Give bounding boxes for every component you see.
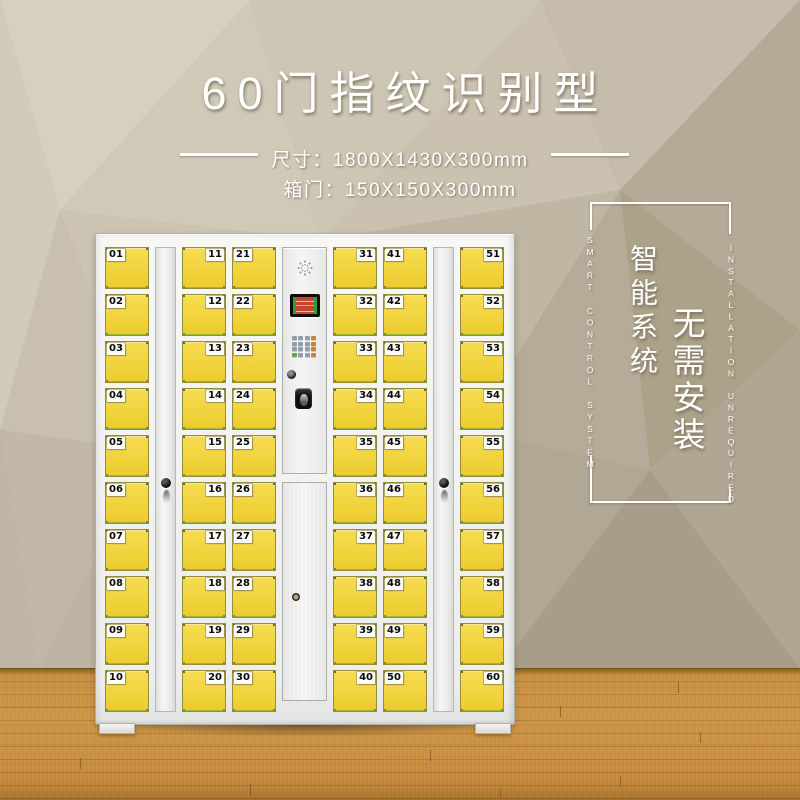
frame-line-top bbox=[590, 202, 731, 204]
keypad-key bbox=[305, 347, 310, 351]
locker-door-column: 21222324252627282930 bbox=[232, 247, 276, 712]
locker-door-column: 31323334353637383940 bbox=[333, 247, 377, 712]
door-number-plate: 40 bbox=[357, 672, 375, 684]
locker-door: 11 bbox=[182, 247, 226, 289]
locker-door: 50 bbox=[383, 670, 427, 712]
door-number-plate: 28 bbox=[234, 578, 252, 590]
locker-door: 47 bbox=[383, 529, 427, 571]
locker-door: 25 bbox=[232, 435, 276, 477]
frame-line-bottom bbox=[590, 501, 731, 503]
spec-rule-right bbox=[551, 153, 629, 156]
locker-door: 58 bbox=[460, 576, 504, 618]
locker-door: 40 bbox=[333, 670, 377, 712]
locker-cabinet: 0102030405060708091011121314151617181920… bbox=[95, 233, 515, 725]
keypad-key bbox=[292, 353, 297, 357]
locker-door: 27 bbox=[232, 529, 276, 571]
keypad-key bbox=[305, 353, 310, 357]
screen-content bbox=[293, 297, 317, 314]
keypad-key bbox=[298, 353, 303, 357]
locker-door-column: 41424344454647484950 bbox=[383, 247, 427, 712]
door-number-plate: 05 bbox=[107, 437, 125, 449]
locker-grid: 0102030405060708091011121314151617181920… bbox=[105, 247, 504, 712]
door-number-plate: 53 bbox=[484, 343, 502, 355]
locker-door: 36 bbox=[333, 482, 377, 524]
door-number-plate: 34 bbox=[357, 390, 375, 402]
lock-strip-panel bbox=[433, 247, 454, 712]
door-number-plate: 26 bbox=[234, 484, 252, 496]
locker-door-column: 01020304050607080910 bbox=[105, 247, 149, 712]
door-number-plate: 10 bbox=[107, 672, 125, 684]
locker-door: 54 bbox=[460, 388, 504, 430]
locker-door: 15 bbox=[182, 435, 226, 477]
door-number-plate: 20 bbox=[206, 672, 224, 684]
locker-door-column: 11121314151617181920 bbox=[182, 247, 226, 712]
locker-door: 30 bbox=[232, 670, 276, 712]
door-number-plate: 14 bbox=[206, 390, 224, 402]
door-number-plate: 25 bbox=[234, 437, 252, 449]
door-number-plate: 36 bbox=[357, 484, 375, 496]
locker-door: 14 bbox=[182, 388, 226, 430]
door-number-plate: 03 bbox=[107, 343, 125, 355]
door-number-plate: 19 bbox=[206, 625, 224, 637]
locker-door: 04 bbox=[105, 388, 149, 430]
locker-door: 17 bbox=[182, 529, 226, 571]
keypad-key bbox=[311, 353, 316, 357]
door-number-plate: 49 bbox=[385, 625, 403, 637]
cabinet-foot-left bbox=[99, 723, 135, 734]
lock-strip-panel bbox=[155, 247, 176, 712]
control-console bbox=[282, 247, 327, 474]
keypad-key bbox=[292, 347, 297, 351]
locker-door: 08 bbox=[105, 576, 149, 618]
door-number-plate: 27 bbox=[234, 531, 252, 543]
door-number-plate: 24 bbox=[234, 390, 252, 402]
door-number-plate: 43 bbox=[385, 343, 403, 355]
locker-door: 53 bbox=[460, 341, 504, 383]
door-number-plate: 54 bbox=[484, 390, 502, 402]
locker-door: 06 bbox=[105, 482, 149, 524]
locker-door: 51 bbox=[460, 247, 504, 289]
door-number-plate: 50 bbox=[385, 672, 403, 684]
keypad-key bbox=[311, 342, 316, 346]
locker-door: 45 bbox=[383, 435, 427, 477]
spec-lines: 尺寸：1800X1430X300mm 箱门：150X150X300mm bbox=[0, 146, 800, 206]
key-lock-icon bbox=[439, 478, 449, 488]
locker-door: 49 bbox=[383, 623, 427, 665]
frame-line-left-upper bbox=[590, 202, 592, 230]
door-number-plate: 02 bbox=[107, 296, 125, 308]
spec-size-line: 尺寸：1800X1430X300mm bbox=[0, 146, 800, 176]
door-number-plate: 23 bbox=[234, 343, 252, 355]
door-number-plate: 57 bbox=[484, 531, 502, 543]
door-number-plate: 17 bbox=[206, 531, 224, 543]
locker-door: 55 bbox=[460, 435, 504, 477]
locker-door: 57 bbox=[460, 529, 504, 571]
locker-door: 21 bbox=[232, 247, 276, 289]
fingerprint-window bbox=[300, 394, 308, 406]
keypad-key bbox=[292, 336, 297, 340]
door-number-plate: 12 bbox=[206, 296, 224, 308]
locker-door: 29 bbox=[232, 623, 276, 665]
locker-door: 43 bbox=[383, 341, 427, 383]
feature-cn-smart: 智能系统 bbox=[622, 244, 662, 380]
door-number-plate: 11 bbox=[206, 249, 224, 261]
locker-door: 20 bbox=[182, 670, 226, 712]
locker-door: 52 bbox=[460, 294, 504, 336]
door-number-plate: 59 bbox=[484, 625, 502, 637]
locker-door: 12 bbox=[182, 294, 226, 336]
door-number-plate: 32 bbox=[357, 296, 375, 308]
locker-door: 31 bbox=[333, 247, 377, 289]
door-number-plate: 48 bbox=[385, 578, 403, 590]
key-lock-icon bbox=[161, 478, 171, 488]
door-number-plate: 16 bbox=[206, 484, 224, 496]
locker-door: 44 bbox=[383, 388, 427, 430]
door-number-plate: 08 bbox=[107, 578, 125, 590]
locker-door: 07 bbox=[105, 529, 149, 571]
locker-door: 23 bbox=[232, 341, 276, 383]
locker-door: 18 bbox=[182, 576, 226, 618]
locker-door: 01 bbox=[105, 247, 149, 289]
locker-door: 56 bbox=[460, 482, 504, 524]
door-number-plate: 37 bbox=[357, 531, 375, 543]
locker-door: 10 bbox=[105, 670, 149, 712]
locker-door: 48 bbox=[383, 576, 427, 618]
door-number-plate: 56 bbox=[484, 484, 502, 496]
feature-block: SMART CONTROL SYSTEM 智能系统 无需安装 INSTALLAT… bbox=[590, 202, 731, 503]
locker-door: 60 bbox=[460, 670, 504, 712]
door-number-plate: 04 bbox=[107, 390, 125, 402]
door-number-plate: 15 bbox=[206, 437, 224, 449]
locker-door: 13 bbox=[182, 341, 226, 383]
door-number-plate: 21 bbox=[234, 249, 252, 261]
fingerprint-reader-icon bbox=[295, 388, 312, 409]
scene: 60门指纹识别型 尺寸：1800X1430X300mm 箱门：150X150X3… bbox=[0, 0, 800, 800]
locker-door: 38 bbox=[333, 576, 377, 618]
keypad-key bbox=[298, 347, 303, 351]
door-number-plate: 51 bbox=[484, 249, 502, 261]
door-number-plate: 29 bbox=[234, 625, 252, 637]
control-column bbox=[282, 247, 327, 712]
locker-door: 03 bbox=[105, 341, 149, 383]
locker-door: 28 bbox=[232, 576, 276, 618]
door-number-plate: 18 bbox=[206, 578, 224, 590]
cabinet-foot-right bbox=[475, 723, 511, 734]
frame-line-right-upper bbox=[729, 202, 731, 234]
door-number-plate: 39 bbox=[357, 625, 375, 637]
door-number-plate: 47 bbox=[385, 531, 403, 543]
door-number-plate: 41 bbox=[385, 249, 403, 261]
locker-door: 05 bbox=[105, 435, 149, 477]
locker-door: 35 bbox=[333, 435, 377, 477]
door-number-plate: 09 bbox=[107, 625, 125, 637]
feature-en-smart: SMART CONTROL SYSTEM bbox=[585, 235, 595, 471]
lock-reflection bbox=[163, 490, 170, 504]
locker-door: 39 bbox=[333, 623, 377, 665]
keypad-key bbox=[292, 342, 297, 346]
locker-door: 22 bbox=[232, 294, 276, 336]
feature-en-install: INSTALLATION UNREQUIRED bbox=[726, 243, 736, 505]
door-number-plate: 52 bbox=[484, 296, 502, 308]
keypad-key bbox=[298, 342, 303, 346]
door-number-plate: 22 bbox=[234, 296, 252, 308]
door-number-plate: 46 bbox=[385, 484, 403, 496]
display-screen bbox=[290, 294, 320, 317]
door-number-plate: 01 bbox=[107, 249, 125, 261]
locker-door: 42 bbox=[383, 294, 427, 336]
page-title: 60门指纹识别型 bbox=[0, 57, 800, 122]
keypad-key bbox=[298, 336, 303, 340]
door-number-plate: 38 bbox=[357, 578, 375, 590]
key-lock-icon bbox=[292, 593, 300, 601]
keypad-key bbox=[311, 336, 316, 340]
locker-door: 34 bbox=[333, 388, 377, 430]
door-number-plate: 07 bbox=[107, 531, 125, 543]
locker-door: 46 bbox=[383, 482, 427, 524]
locker-door: 16 bbox=[182, 482, 226, 524]
spec-rule-left bbox=[180, 153, 258, 156]
locker-door: 24 bbox=[232, 388, 276, 430]
locker-door: 59 bbox=[460, 623, 504, 665]
locker-door-column: 51525354555657585960 bbox=[460, 247, 504, 712]
keypad-key bbox=[311, 347, 316, 351]
locker-door: 33 bbox=[333, 341, 377, 383]
keypad-key bbox=[305, 342, 310, 346]
keypad-key bbox=[305, 336, 310, 340]
round-button bbox=[287, 370, 296, 379]
locker-door: 09 bbox=[105, 623, 149, 665]
door-number-plate: 60 bbox=[484, 672, 502, 684]
locker-door: 02 bbox=[105, 294, 149, 336]
locker-door: 19 bbox=[182, 623, 226, 665]
door-number-plate: 06 bbox=[107, 484, 125, 496]
door-number-plate: 42 bbox=[385, 296, 403, 308]
door-number-plate: 55 bbox=[484, 437, 502, 449]
door-number-plate: 33 bbox=[357, 343, 375, 355]
door-number-plate: 31 bbox=[357, 249, 375, 261]
door-number-plate: 30 bbox=[234, 672, 252, 684]
feature-cn-install: 无需安装 bbox=[662, 306, 710, 454]
lock-reflection bbox=[441, 490, 448, 504]
door-number-plate: 13 bbox=[206, 343, 224, 355]
door-number-plate: 58 bbox=[484, 578, 502, 590]
keypad bbox=[292, 336, 317, 357]
locker-door: 41 bbox=[383, 247, 427, 289]
speaker-icon bbox=[295, 258, 315, 283]
door-number-plate: 35 bbox=[357, 437, 375, 449]
hero-header: 60门指纹识别型 尺寸：1800X1430X300mm 箱门：150X150X3… bbox=[0, 0, 800, 206]
locker-door: 37 bbox=[333, 529, 377, 571]
door-number-plate: 45 bbox=[385, 437, 403, 449]
door-number-plate: 44 bbox=[385, 390, 403, 402]
locker-door: 26 bbox=[232, 482, 276, 524]
control-column-lower-door bbox=[282, 482, 327, 701]
locker-door: 32 bbox=[333, 294, 377, 336]
